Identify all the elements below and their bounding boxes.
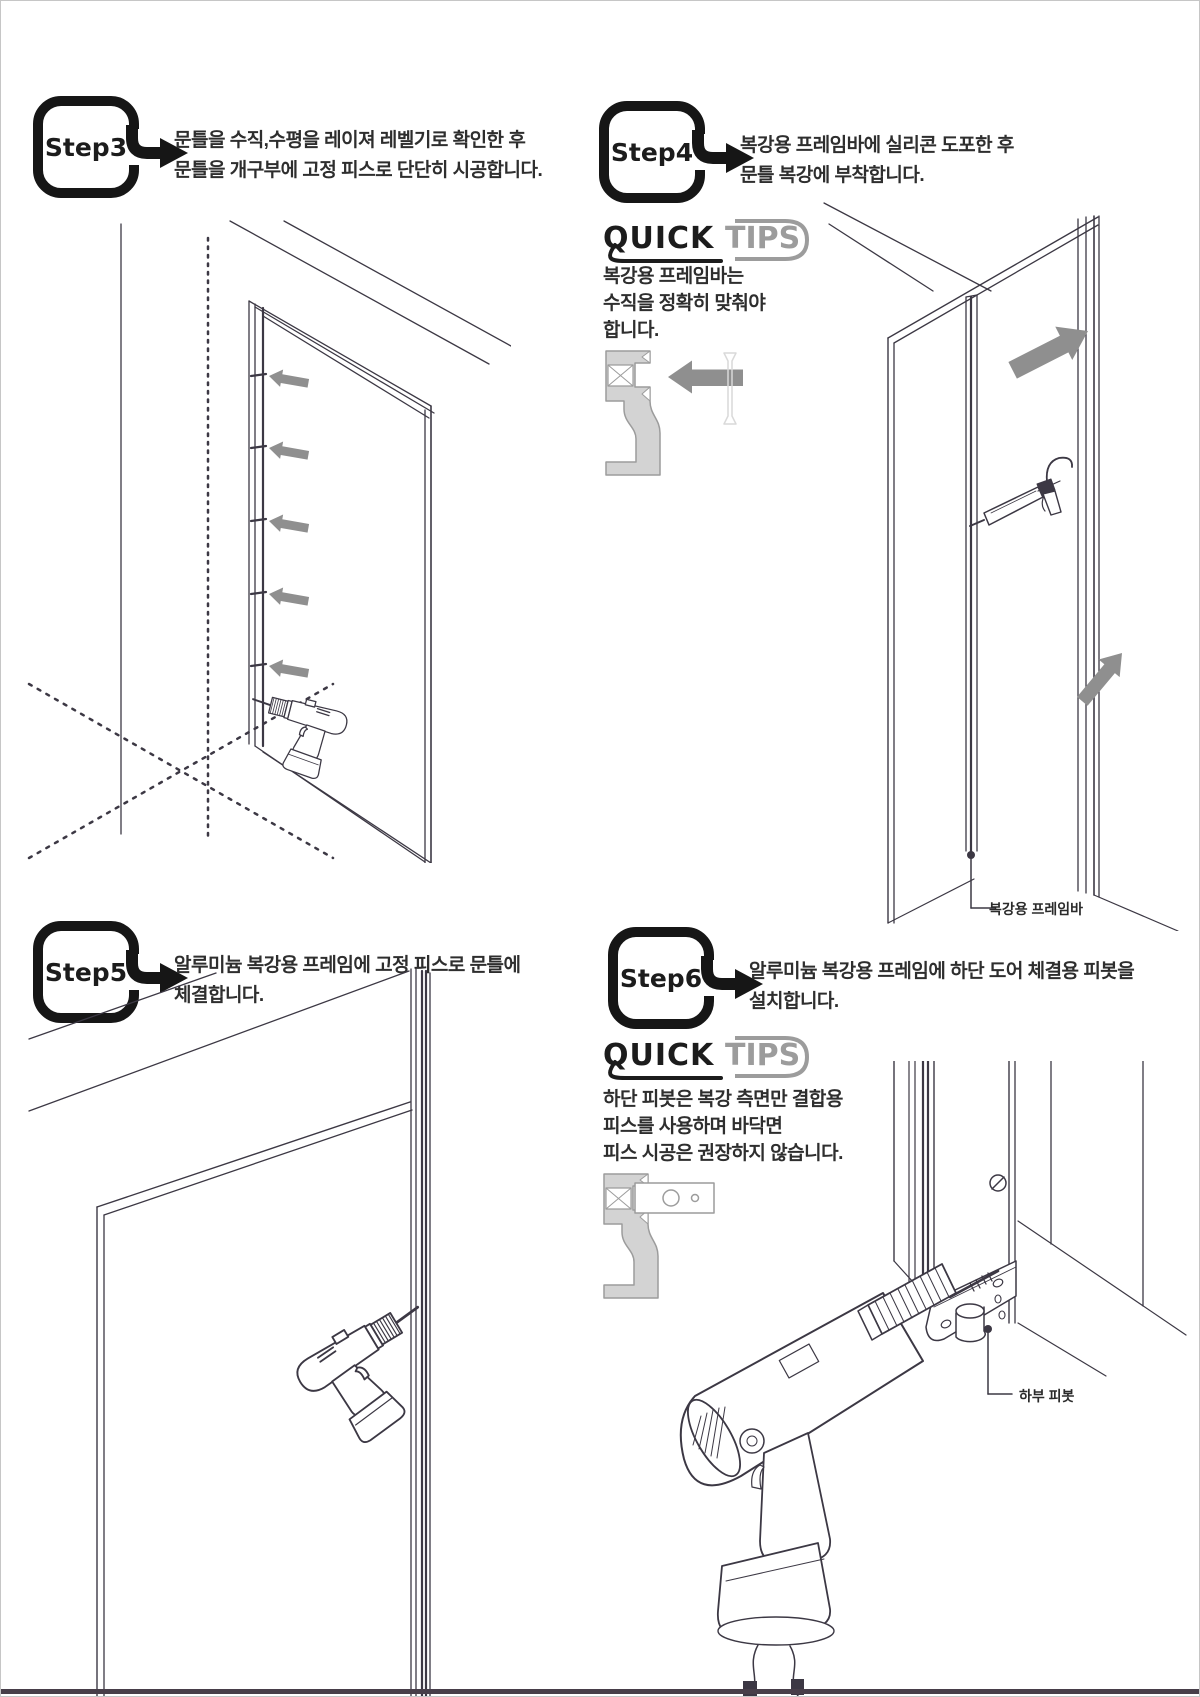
door-frame-lines bbox=[249, 301, 434, 863]
step4-badge: Step4 bbox=[599, 101, 705, 203]
fixing-arrow-icons bbox=[267, 367, 309, 681]
slide-up-arrow-icon bbox=[1071, 644, 1132, 710]
reinforcement-frame-bar bbox=[411, 969, 430, 1697]
step3-desc-line2: 문틀을 개구부에 고정 피스로 단단히 시공합니다. bbox=[174, 156, 542, 186]
door-frame-lines bbox=[824, 203, 1178, 931]
reinforcement-frame-bar bbox=[966, 295, 977, 851]
frame-bar-callout-label: 복강용 프레임바 bbox=[989, 899, 1083, 919]
pivot-bracket-tip-icon bbox=[635, 1183, 714, 1213]
step4-desc-line1: 복강용 프레임바에 실리콘 도포한 후 bbox=[740, 131, 1014, 161]
step6-header: Step6 알루미늄 복강용 프레임에 하단 도어 체결용 피봇을 설치합니다. bbox=[608, 927, 1168, 1047]
step3-desc-line1: 문틀을 수직,수평을 레이져 레벨기로 확인한 후 bbox=[174, 126, 542, 156]
step6-badge-label: Step6 bbox=[620, 964, 702, 993]
lower-pivot-callout-label: 하부 피봇 bbox=[1019, 1386, 1074, 1406]
step4-desc-line2: 문틀 복강에 부착합니다. bbox=[740, 161, 1014, 191]
drill-icon bbox=[289, 1291, 464, 1455]
drill-icon bbox=[678, 1264, 956, 1697]
step4-doorframe-illustration bbox=[546, 191, 1200, 931]
step4-badge-label: Step4 bbox=[611, 138, 693, 167]
step6-desc-line2: 설치합니다. bbox=[749, 987, 1134, 1017]
step5-doorframe-illustration bbox=[11, 961, 541, 1697]
step6-pivot-illustration bbox=[546, 1061, 1200, 1697]
step6-desc-line1: 알루미늄 복강용 프레임에 하단 도어 체결용 피봇을 bbox=[749, 957, 1134, 987]
step3-doorframe-illustration bbox=[11, 186, 511, 863]
step3-badge-label: Step3 bbox=[45, 133, 127, 162]
slide-up-arrow-icon bbox=[1004, 314, 1097, 386]
frame-profile-icon bbox=[606, 351, 660, 475]
instruction-page: Step3 문틀을 수직,수평을 레이져 레벨기로 확인한 후 문틀을 개구부에… bbox=[0, 0, 1200, 1697]
frame-bar-ghost-outline bbox=[724, 353, 736, 424]
footer-bar bbox=[1, 1689, 1200, 1694]
caulk-gun-icon bbox=[970, 458, 1072, 526]
step6-badge: Step6 bbox=[608, 927, 714, 1029]
lower-pivot-callout-line bbox=[984, 1325, 1012, 1394]
pivot-cylinder-icon bbox=[956, 1304, 985, 1342]
step3-badge: Step3 bbox=[33, 96, 139, 198]
